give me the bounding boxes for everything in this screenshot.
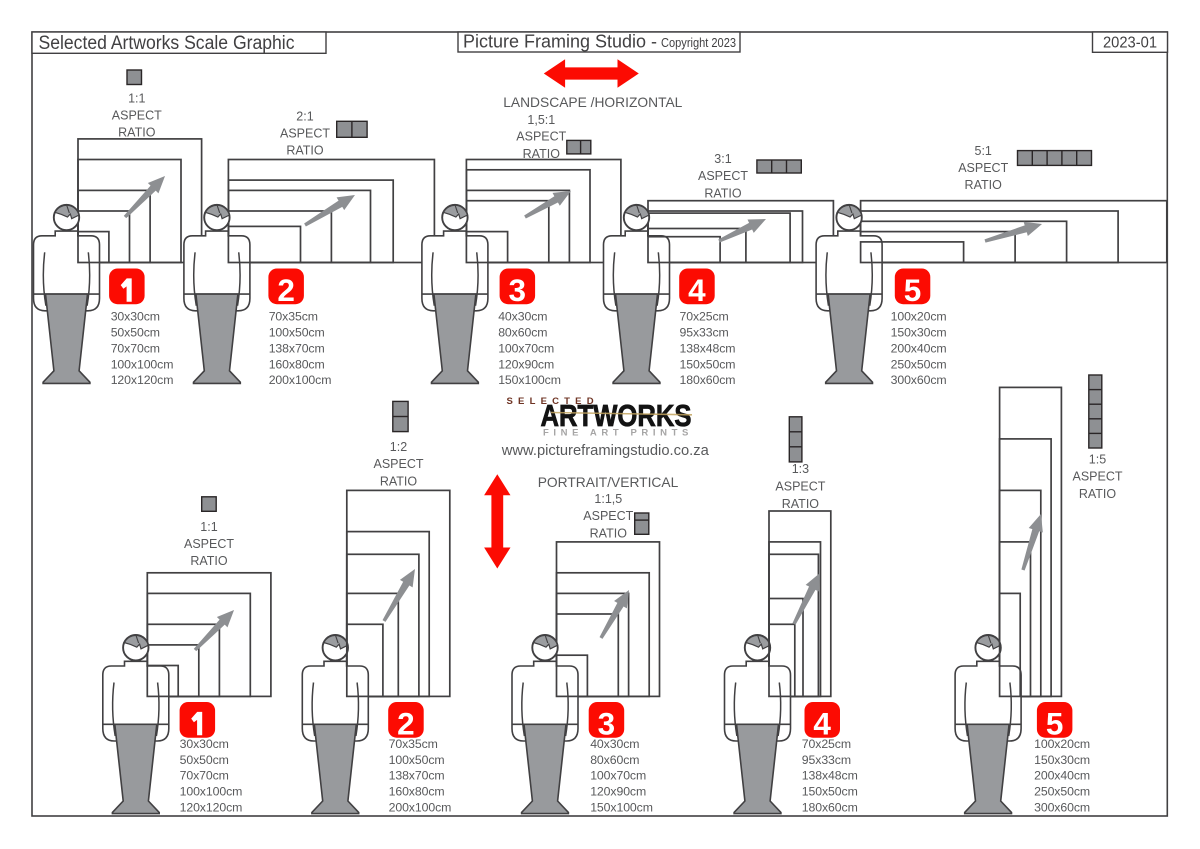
svg-text:138x70cm: 138x70cm [389,769,445,783]
svg-text:150x50cm: 150x50cm [802,785,858,799]
svg-text:150x30cm: 150x30cm [1034,753,1090,767]
svg-text:80x60cm: 80x60cm [498,326,547,340]
svg-text:ASPECT: ASPECT [280,127,330,141]
svg-text:100x100cm: 100x100cm [180,785,243,799]
svg-text:5:1: 5:1 [975,144,992,158]
svg-text:ASPECT: ASPECT [583,509,633,523]
svg-text:RATIO: RATIO [590,526,628,540]
svg-text:PORTRAIT/VERTICAL: PORTRAIT/VERTICAL [538,475,679,490]
svg-text:300x60cm: 300x60cm [891,373,947,387]
svg-text:LANDSCAPE /HORIZONTAL: LANDSCAPE /HORIZONTAL [503,95,682,110]
svg-text:70x35cm: 70x35cm [389,737,438,751]
svg-text:70x70cm: 70x70cm [111,341,160,355]
svg-text:RATIO: RATIO [1079,487,1117,501]
svg-text:Picture Framing Studio -: Picture Framing Studio - [463,32,657,52]
svg-text:Copyright 2023: Copyright 2023 [661,36,736,50]
svg-text:70x70cm: 70x70cm [180,769,229,783]
svg-text:FINE ART PRINTS: FINE ART PRINTS [543,428,693,439]
svg-text:ASPECT: ASPECT [698,169,748,183]
svg-text:ASPECT: ASPECT [1072,470,1122,484]
svg-text:30x30cm: 30x30cm [111,310,160,324]
svg-text:30x30cm: 30x30cm [180,737,229,751]
svg-text:2023-01: 2023-01 [1103,35,1157,52]
svg-text:RATIO: RATIO [286,144,324,158]
svg-text:138x70cm: 138x70cm [269,341,325,355]
svg-text:120x120cm: 120x120cm [180,801,243,815]
svg-text:2:1: 2:1 [296,109,313,123]
svg-text:150x100cm: 150x100cm [498,373,561,387]
svg-text:1:1: 1:1 [200,520,217,534]
svg-text:1:1: 1:1 [128,91,145,105]
svg-text:100x20cm: 100x20cm [1034,737,1090,751]
svg-text:4: 4 [688,272,706,308]
svg-text:95x33cm: 95x33cm [802,753,851,767]
svg-text:200x40cm: 200x40cm [1034,769,1090,783]
svg-text:200x40cm: 200x40cm [891,341,947,355]
svg-text:100x70cm: 100x70cm [590,769,646,783]
svg-text:www.pictureframingstudio.co.za: www.pictureframingstudio.co.za [501,442,710,459]
svg-text:ASPECT: ASPECT [373,457,423,471]
svg-text:80x60cm: 80x60cm [590,753,639,767]
svg-text:200x100cm: 200x100cm [269,373,332,387]
svg-text:ASPECT: ASPECT [112,108,162,122]
svg-text:120x90cm: 120x90cm [498,357,554,371]
svg-text:70x25cm: 70x25cm [802,737,851,751]
svg-text:RATIO: RATIO [782,497,820,511]
svg-text:ASPECT: ASPECT [775,479,825,493]
svg-text:70x35cm: 70x35cm [269,310,318,324]
svg-text:RATIO: RATIO [190,554,228,568]
svg-text:250x50cm: 250x50cm [891,357,947,371]
svg-text:100x100cm: 100x100cm [111,357,174,371]
svg-text:70x25cm: 70x25cm [680,310,729,324]
svg-text:200x100cm: 200x100cm [389,801,452,815]
svg-text:138x48cm: 138x48cm [680,341,736,355]
svg-text:5: 5 [904,272,922,308]
svg-text:RATIO: RATIO [380,475,418,489]
svg-text:3: 3 [509,272,527,308]
svg-text:3:1: 3:1 [714,152,731,166]
svg-text:160x80cm: 160x80cm [269,357,325,371]
svg-text:1,5:1: 1,5:1 [527,113,555,127]
svg-text:100x20cm: 100x20cm [891,310,947,324]
svg-text:1:1,5: 1:1,5 [594,492,622,506]
svg-text:180x60cm: 180x60cm [802,801,858,815]
svg-text:150x50cm: 150x50cm [680,357,736,371]
svg-text:1:3: 1:3 [792,462,809,476]
svg-text:250x50cm: 250x50cm [1034,785,1090,799]
svg-text:40x30cm: 40x30cm [498,310,547,324]
svg-text:150x30cm: 150x30cm [891,326,947,340]
svg-text:Selected Artworks Scale Graphi: Selected Artworks Scale Graphic [39,33,295,54]
svg-text:50x50cm: 50x50cm [111,326,160,340]
svg-text:1:5: 1:5 [1089,453,1106,467]
svg-text:300x60cm: 300x60cm [1034,801,1090,815]
svg-text:ASPECT: ASPECT [958,161,1008,175]
svg-text:120x120cm: 120x120cm [111,373,174,387]
svg-text:138x48cm: 138x48cm [802,769,858,783]
svg-text:40x30cm: 40x30cm [590,737,639,751]
svg-text:ASPECT: ASPECT [184,537,234,551]
svg-text:RATIO: RATIO [965,178,1003,192]
svg-text:120x90cm: 120x90cm [590,785,646,799]
svg-text:100x50cm: 100x50cm [269,326,325,340]
svg-text:2: 2 [277,272,295,308]
svg-text:1:2: 1:2 [390,440,407,454]
svg-text:100x70cm: 100x70cm [498,341,554,355]
svg-text:50x50cm: 50x50cm [180,753,229,767]
svg-text:100x50cm: 100x50cm [389,753,445,767]
svg-text:95x33cm: 95x33cm [680,326,729,340]
svg-text:180x60cm: 180x60cm [680,373,736,387]
svg-text:ASPECT: ASPECT [516,130,566,144]
svg-text:RATIO: RATIO [704,186,742,200]
svg-text:150x100cm: 150x100cm [590,801,653,815]
svg-text:160x80cm: 160x80cm [389,785,445,799]
svg-text:RATIO: RATIO [118,126,156,140]
